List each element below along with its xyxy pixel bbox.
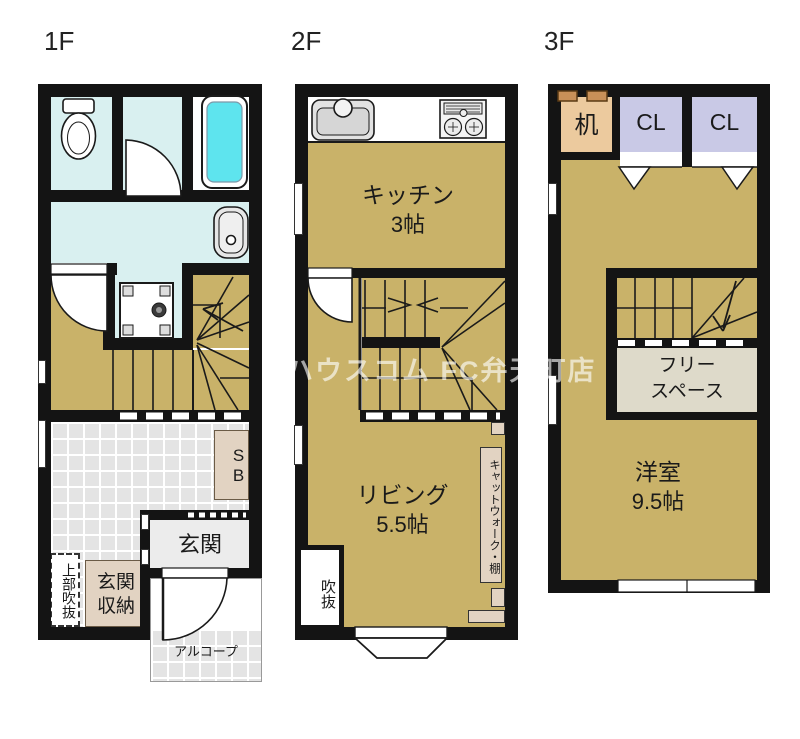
wall [295,84,518,97]
kitchen-size: 3帖 [318,211,498,240]
wall [182,275,193,338]
wall [140,510,262,520]
wall [140,578,150,640]
wall [140,568,262,578]
void-label-2f: 吹抜 [303,566,337,622]
catwalk-step [491,422,505,435]
window-marker [38,360,46,384]
window-marker [294,425,303,465]
window-marker [548,183,557,215]
wall [103,338,193,350]
vestibule-floor [123,97,182,190]
wall [38,627,150,640]
wall [249,84,262,578]
wall [38,84,262,97]
wall [606,412,757,420]
shoe-box-label: SB [214,438,249,494]
stair-1f-lower-floor [51,350,249,410]
wall [112,97,123,190]
wall [548,84,561,593]
living-label: リビング 5.5帖 [315,481,490,539]
floor-label-3f: 3F [544,26,574,57]
wall [107,263,117,275]
wall [548,152,620,160]
wall [182,263,262,275]
alcove-label: アルコープ [150,644,262,661]
wall [182,97,193,202]
bathroom-floor [193,97,249,190]
washroom-floor [51,202,249,263]
hall-1f-floor [51,275,103,350]
wall [51,190,249,202]
upper-void-label: 上部吹抜 [52,558,78,624]
entrance-storage-label: 玄関収納 [94,571,138,619]
door-opening-marker [141,549,149,565]
toilet-room-floor [51,97,112,190]
door-opening-marker [141,514,149,530]
catwalk-shelf-label: キャットウォーク・棚 [481,452,501,580]
closet-right-label: CL [692,108,757,138]
kitchen-label: キッチン 3帖 [318,181,498,239]
wall [606,268,617,420]
entrance-label: 玄関 [155,531,245,560]
stair-2f-floor [362,278,505,410]
free-space-line1: フリー [620,353,754,379]
living-size: 5.5帖 [315,511,490,540]
desk-label: 机 [561,110,612,141]
catwalk-step [491,588,505,607]
floor-plan-canvas: 1F [0,0,800,739]
living-name: リビング [315,481,490,511]
wall [548,580,770,593]
watermark: ハウスコム FC弁天町店 [286,349,597,388]
washer-alcove-floor [115,263,182,338]
wall [757,84,770,593]
floor-label-2f: 2F [291,26,321,57]
bedroom-label: 洋室 9.5帖 [570,458,746,516]
stair-1f-upper-floor [193,275,249,348]
closet-left-door-band [620,152,682,167]
bedroom-name: 洋室 [570,458,746,488]
catwalk-step [468,610,505,623]
wall [682,84,692,167]
closet-right-door-band [692,152,757,167]
free-space-line2: スペース [620,379,754,405]
bedroom-size: 9.5帖 [570,488,746,517]
window-marker [38,420,46,468]
closet-left-label: CL [620,108,682,138]
wall [612,84,620,160]
wall [548,84,770,97]
free-space-label: フリー スペース [620,353,754,404]
wall [352,268,505,278]
kitchen-name: キッチン [318,181,498,211]
floor-label-1f: 1F [44,26,74,57]
window-marker [294,183,303,235]
wall [612,268,757,278]
